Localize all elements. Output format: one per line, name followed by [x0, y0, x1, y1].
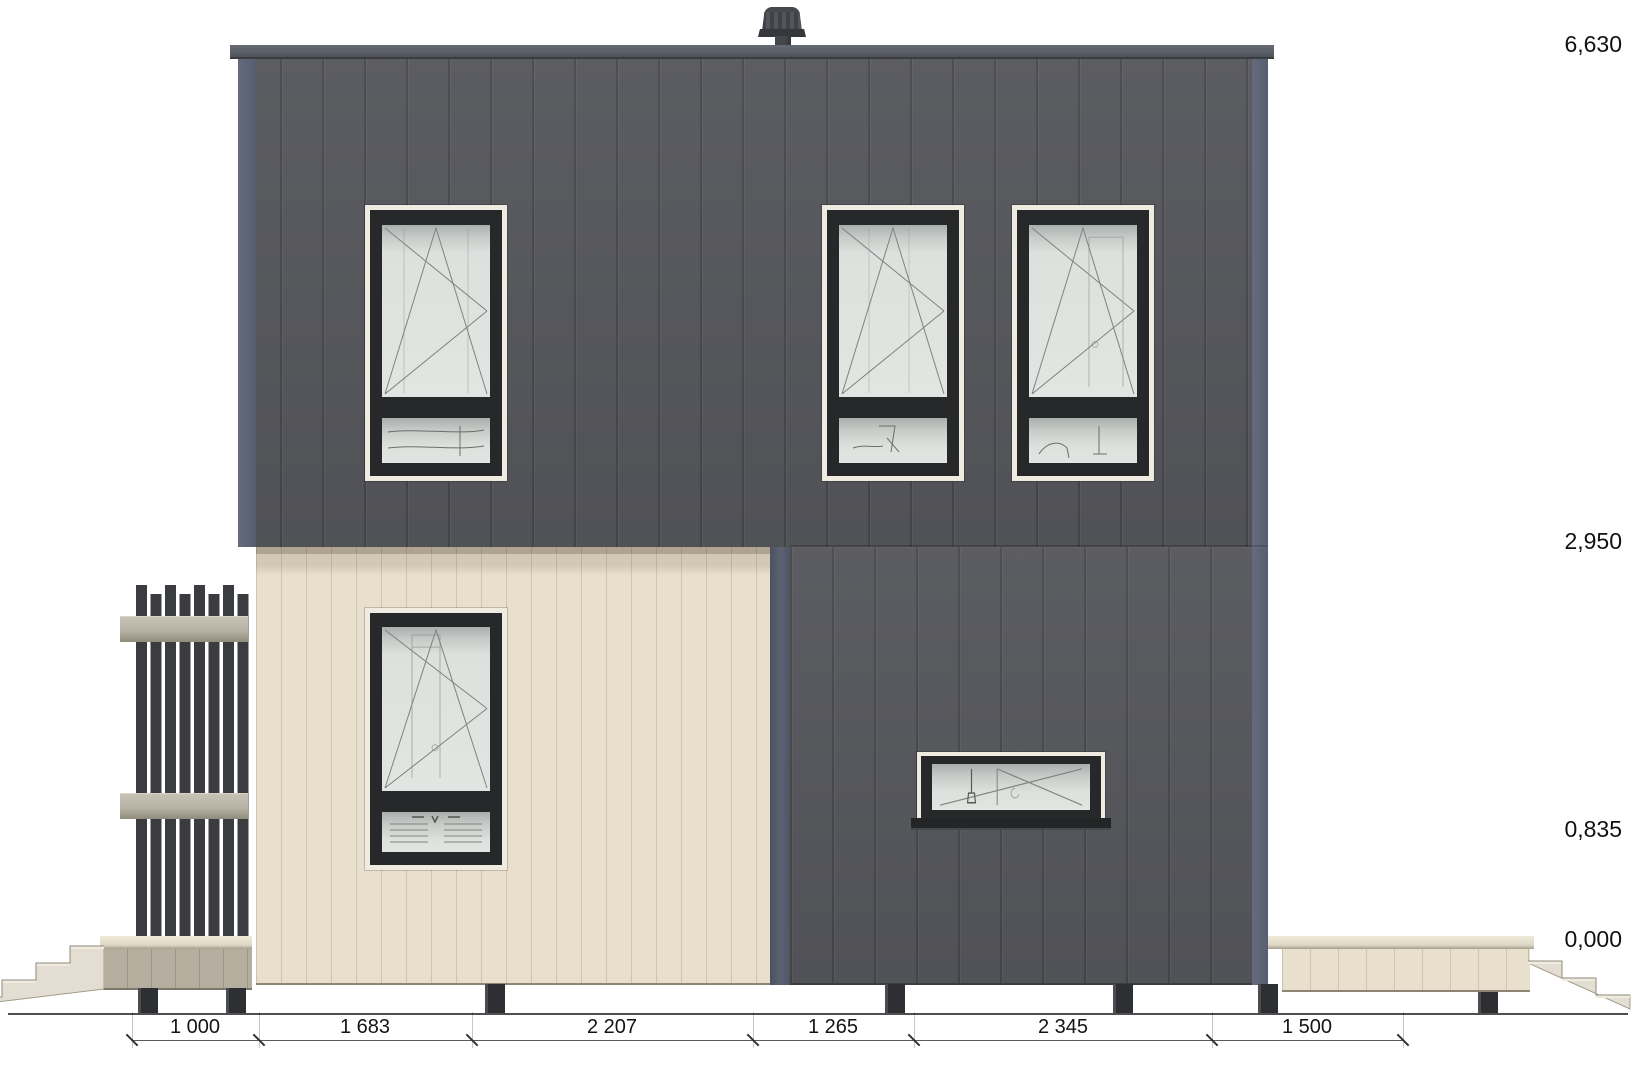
foundation-post — [885, 984, 905, 1014]
deck-right-skirt — [1282, 949, 1530, 992]
bathroom-sketch-icon — [932, 764, 1090, 810]
interior-sketch-icon — [382, 418, 490, 463]
window-glass-upper — [382, 627, 490, 791]
tilt-turn-symbol-icon — [839, 225, 947, 397]
foundation-post — [138, 988, 158, 1014]
right-corner-trim — [1252, 59, 1268, 985]
deck-right-cap — [1268, 936, 1534, 949]
parapet-cap — [230, 45, 1274, 59]
left-corner-trim — [238, 59, 256, 547]
window-frame — [1017, 210, 1149, 476]
roof-vent-body — [762, 12, 802, 31]
fence-slats — [136, 594, 250, 938]
roof-vent — [756, 5, 808, 49]
radiator-sketch-icon — [382, 812, 490, 852]
dimension-label: 1 265 — [763, 1016, 903, 1039]
window-upper-left — [365, 205, 507, 481]
foundation-post — [1478, 992, 1498, 1014]
dimension-label: 2 345 — [993, 1016, 1133, 1039]
window-glass-lower — [382, 418, 490, 463]
porch-left-cap — [100, 936, 252, 949]
tilt-turn-symbol-icon — [1029, 225, 1137, 397]
foundation-post — [1258, 984, 1278, 1014]
window-glass-lower — [839, 418, 947, 463]
window-glass-upper — [839, 225, 947, 397]
window-glass — [932, 764, 1090, 810]
dimension-label: 1 000 — [125, 1016, 265, 1039]
wall-junction-return — [770, 547, 790, 985]
window-ground-left — [365, 608, 507, 870]
foundation-post — [485, 984, 505, 1014]
fence-rail-bottom — [120, 793, 248, 819]
floor-slab-seam — [790, 545, 1268, 547]
elevation-level-label: 6,630 — [1512, 31, 1622, 58]
dimension-label: 1 500 — [1237, 1016, 1377, 1039]
interior-sketch-icon — [1029, 418, 1137, 463]
dimension-label: 2 207 — [542, 1016, 682, 1039]
elevation-level-label: 2,950 — [1512, 528, 1622, 555]
window-glass-lower — [382, 812, 490, 852]
ground-line — [8, 1013, 1628, 1015]
window-bathroom — [917, 752, 1105, 822]
window-upper-right — [1012, 205, 1154, 481]
tilt-turn-symbol-icon — [382, 225, 490, 397]
window-glass-lower — [1029, 418, 1137, 463]
elevation-level-label: 0,000 — [1512, 926, 1622, 953]
window-frame — [827, 210, 959, 476]
window-bathroom-sill — [911, 818, 1111, 830]
stairs-left — [0, 936, 104, 1016]
interior-sketch-icon — [839, 418, 947, 463]
foundation-post — [226, 988, 246, 1014]
porch-left-skirt — [103, 949, 252, 990]
window-glass-upper — [1029, 225, 1137, 397]
elevation-level-label: 0,835 — [1512, 816, 1622, 843]
window-frame — [921, 756, 1101, 818]
window-frame — [370, 613, 502, 865]
ground-floor-facade-cream — [256, 547, 770, 985]
window-glass-upper — [382, 225, 490, 397]
window-frame — [370, 210, 502, 476]
dimension-label: 1 683 — [295, 1016, 435, 1039]
foundation-post — [1113, 984, 1133, 1014]
house-elevation-drawing: 1 000 1 683 2 207 1 265 2 345 1 500 6,63… — [0, 0, 1636, 1080]
tilt-turn-symbol-icon — [382, 627, 490, 791]
fence-rail-top — [120, 616, 248, 642]
window-upper-middle — [822, 205, 964, 481]
